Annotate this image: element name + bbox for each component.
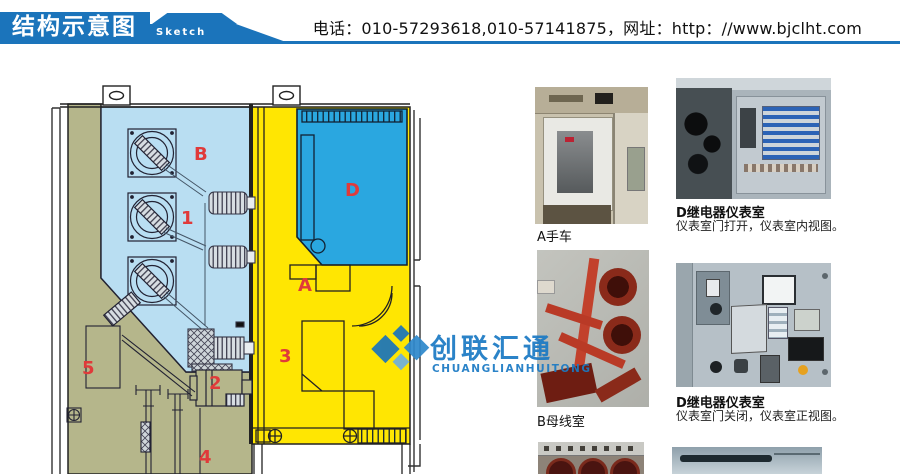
part-label-1: 1 [181, 208, 194, 229]
photo-subcaption: 仪表室门打开，仪表室内视图。 [676, 217, 844, 234]
page-title: 结构示意图 [0, 12, 150, 42]
control-row [549, 95, 583, 102]
watermark-name-en: CHUANGLIANHUITONG [432, 363, 592, 375]
terminal-strip [744, 164, 818, 172]
photo-subcaption: 仪表室门关闭，仪表室正视图。 [676, 407, 844, 424]
busbar-arm [545, 303, 603, 329]
selector-switch [734, 359, 748, 373]
banner-step-shape [152, 13, 237, 24]
contact-info: 电话：010-57293618,010-57141875，网址：http：//w… [313, 15, 862, 39]
photo-relay-room-closed [676, 263, 831, 387]
support-clamp [537, 280, 555, 294]
busbar-insulator [603, 316, 641, 354]
busbar-insulator [599, 268, 637, 306]
logo-square [393, 325, 410, 342]
terminal-blocks [762, 106, 820, 160]
cabinet-left-wall [52, 108, 60, 474]
display-window [595, 93, 613, 104]
part-label-A: A [298, 275, 312, 296]
part-label-5: 5 [82, 358, 95, 379]
photo-relay-room-open [676, 78, 831, 199]
ct-coil [546, 458, 576, 474]
door-window [627, 147, 645, 191]
bolt-row [544, 446, 638, 451]
screw [822, 273, 828, 279]
cable-termination [595, 367, 642, 402]
door-mounted-components [684, 100, 724, 180]
banner-tail-shape [236, 24, 286, 42]
photo-cropped-panel [672, 447, 822, 474]
panel-seam [774, 453, 820, 455]
logo-square [393, 353, 410, 370]
banner-subtitle-band: Sketch Map [150, 24, 236, 42]
push-button [710, 361, 722, 373]
small-meter [794, 309, 820, 331]
catalog-page: 结构示意图 Sketch Map 电话：010-57293618,010-571… [0, 0, 900, 474]
watermark-name-cn: 创联汇通 [430, 327, 554, 366]
top-frame [60, 86, 410, 107]
ct-coil [610, 458, 640, 474]
breaker-unit [557, 131, 593, 193]
part-label-B: B [194, 144, 208, 165]
part-label-D: D [345, 180, 360, 201]
ct-coil [578, 458, 608, 474]
terminal-module [768, 307, 788, 339]
part-label-3: 3 [279, 346, 292, 367]
photo-caption: B母线室 [537, 411, 585, 430]
switchgear-cross-section-drawing [40, 74, 520, 474]
indicator-lamp [798, 365, 808, 375]
compartment-base [543, 205, 611, 224]
photo-cropped-ct [538, 442, 644, 474]
dark-display [788, 337, 824, 361]
photo-handcart [535, 87, 648, 224]
screw [822, 369, 828, 375]
photo-caption: A手车 [537, 226, 572, 245]
part-label-2: 2 [209, 373, 222, 394]
relay-unit [731, 304, 767, 354]
header-rule [0, 41, 900, 44]
header-banner: 结构示意图 [0, 12, 150, 42]
breaker-tag [565, 137, 574, 142]
control-knob [710, 303, 722, 315]
switch-handle [706, 279, 720, 297]
wiring-duct [740, 108, 756, 148]
meter [762, 275, 796, 305]
panel-slot [680, 455, 772, 462]
door-edge [676, 263, 693, 387]
part-label-4: 4 [199, 447, 212, 468]
key-lock [760, 355, 780, 383]
